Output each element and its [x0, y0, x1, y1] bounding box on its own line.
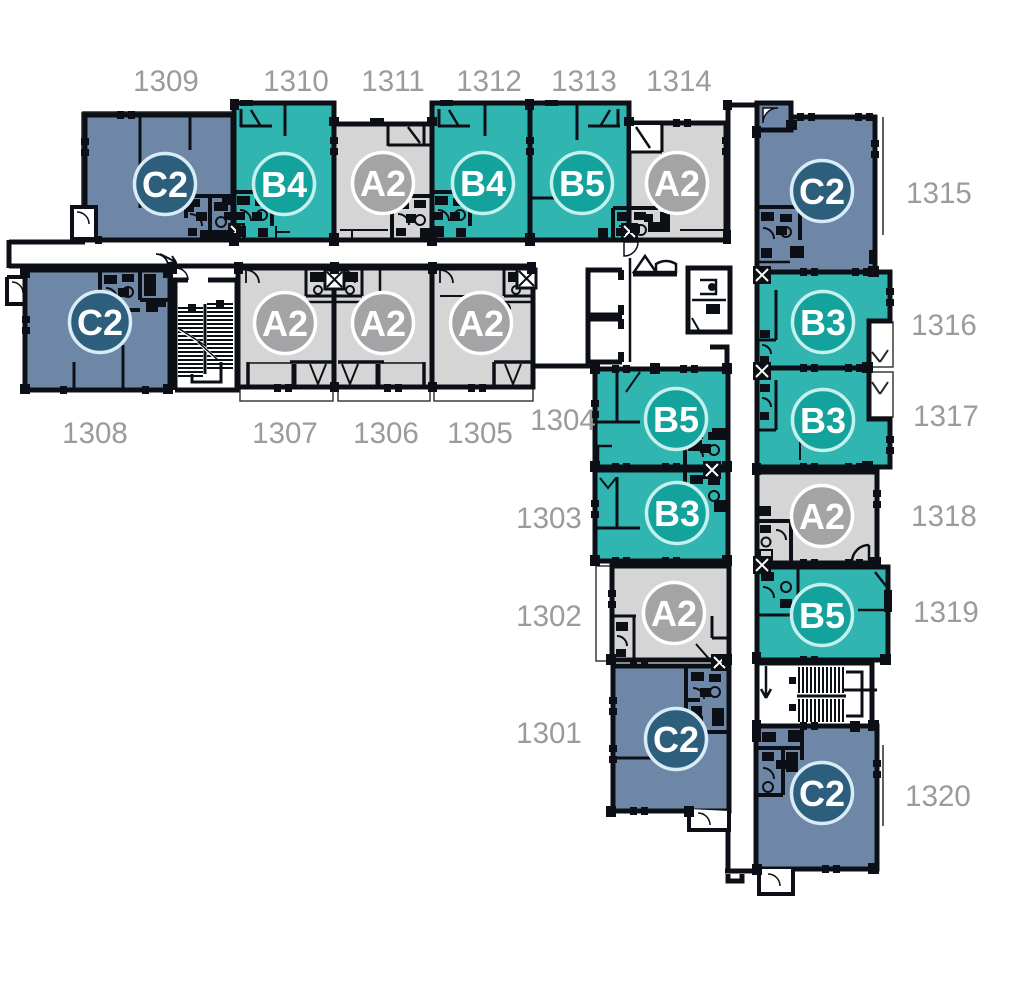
svg-text:A2: A2: [651, 593, 697, 634]
svg-text:C2: C2: [77, 302, 123, 343]
svg-text:1302: 1302: [516, 600, 582, 633]
svg-text:B4: B4: [460, 163, 506, 204]
svg-text:A2: A2: [458, 303, 504, 344]
svg-text:1308: 1308: [62, 417, 128, 450]
svg-text:B5: B5: [653, 399, 699, 440]
svg-text:1301: 1301: [516, 717, 582, 750]
svg-text:1305: 1305: [447, 417, 513, 450]
svg-text:1316: 1316: [911, 309, 977, 342]
svg-text:A2: A2: [654, 163, 700, 204]
svg-text:C2: C2: [653, 719, 699, 760]
svg-text:1310: 1310: [263, 65, 329, 98]
svg-text:B3: B3: [800, 400, 846, 441]
svg-text:1319: 1319: [913, 596, 979, 629]
svg-text:B5: B5: [559, 163, 605, 204]
svg-text:1315: 1315: [906, 177, 972, 210]
svg-text:1303: 1303: [516, 502, 582, 535]
svg-text:1307: 1307: [252, 417, 318, 450]
svg-text:1309: 1309: [133, 65, 199, 98]
svg-text:1314: 1314: [646, 65, 712, 98]
svg-text:1313: 1313: [551, 65, 617, 98]
svg-text:C2: C2: [799, 773, 845, 814]
svg-text:B5: B5: [799, 595, 845, 636]
svg-text:1320: 1320: [905, 780, 971, 813]
svg-text:C2: C2: [142, 164, 188, 205]
svg-text:A2: A2: [799, 496, 845, 537]
svg-text:B4: B4: [261, 164, 307, 205]
svg-text:C2: C2: [799, 171, 845, 212]
svg-text:1312: 1312: [456, 65, 522, 98]
svg-text:1317: 1317: [913, 400, 979, 433]
svg-text:B3: B3: [654, 493, 700, 534]
svg-text:A2: A2: [262, 303, 308, 344]
svg-text:1311: 1311: [361, 65, 424, 98]
svg-text:1306: 1306: [353, 417, 419, 450]
svg-text:A2: A2: [360, 303, 406, 344]
svg-text:1304: 1304: [530, 404, 596, 437]
svg-text:1318: 1318: [911, 500, 977, 533]
svg-text:A2: A2: [360, 163, 406, 204]
svg-text:B3: B3: [800, 302, 846, 343]
